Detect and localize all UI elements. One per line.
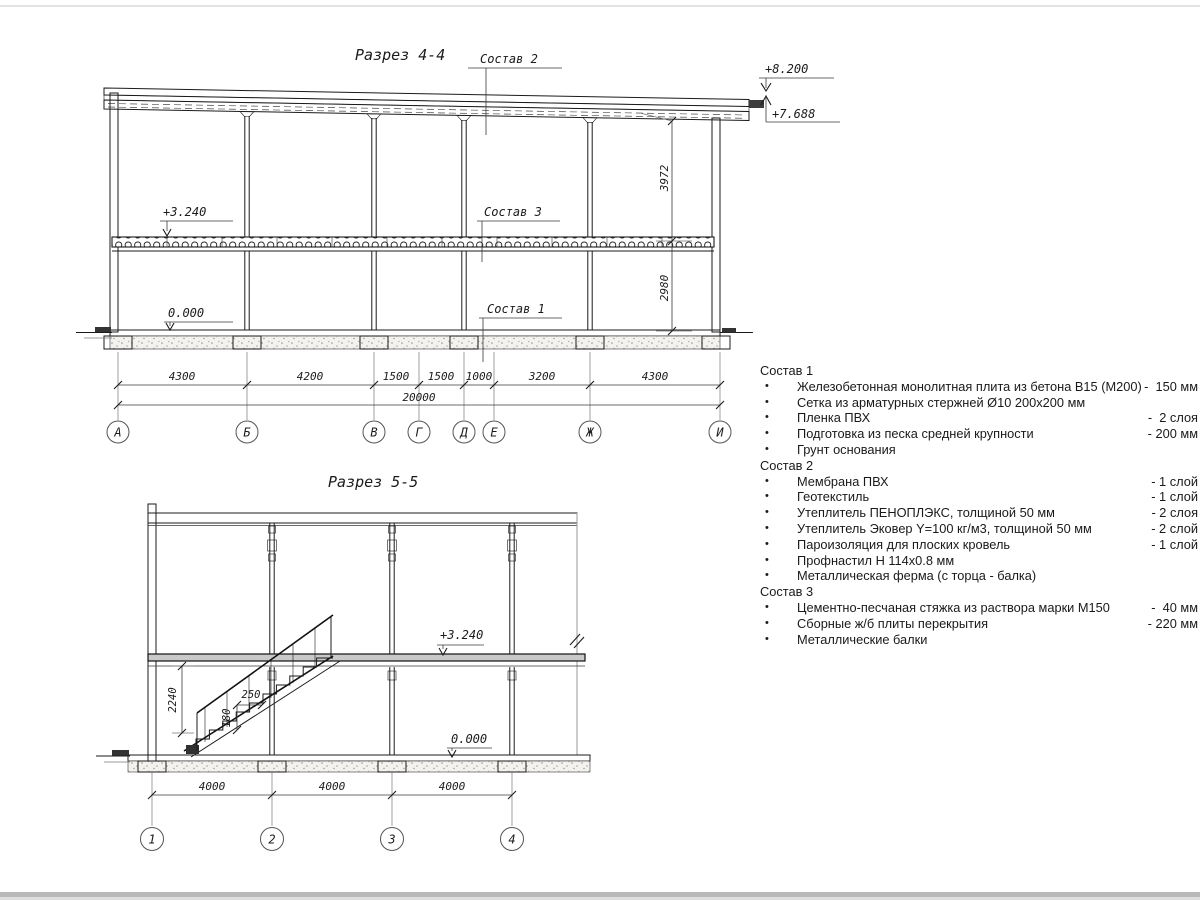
bullet-icon: • xyxy=(760,553,797,569)
bullet-icon: • xyxy=(760,537,797,553)
dim-4300-b: 4300 xyxy=(642,370,669,383)
wall-right-4-4 xyxy=(712,118,720,332)
bullet-icon: • xyxy=(760,442,797,458)
dim-4000-b: 4000 xyxy=(319,780,346,793)
sostav2-label: Состав 2 xyxy=(480,52,538,66)
bullet-icon: • xyxy=(760,395,797,411)
material-item: •Утеплитель Эковер Y=100 кг/м3, толщиной… xyxy=(760,521,1198,537)
section-5-5: Разрез 5-5 xyxy=(96,473,590,851)
axis-B: Б xyxy=(243,426,251,440)
cut-line-5-5 xyxy=(570,513,584,755)
axis-2: 2 xyxy=(268,833,275,847)
material-item: •Сетка из арматурных стержней Ø10 200х20… xyxy=(760,395,1198,411)
sostav1-callout: Состав 1 xyxy=(479,302,562,362)
dim-2240: 2240 xyxy=(167,687,179,712)
materials-header-3: Состав 3 xyxy=(760,584,1198,600)
sostav3-callout: Состав 3 xyxy=(477,205,560,262)
axes-5-5: 1 2 3 4 xyxy=(141,828,524,851)
dim-180: 180 xyxy=(221,709,233,728)
floor-slab-4-4 xyxy=(112,237,714,251)
material-item: •Мембрана ПВХ- 1 слой xyxy=(760,474,1198,490)
section-4-4: Разрез 4-4 xyxy=(76,46,840,443)
elev-8200-text: +8.200 xyxy=(765,62,808,76)
columns-upper-4-4 xyxy=(240,112,597,238)
roof-4-4 xyxy=(104,88,764,121)
section55-title: Разрез 5-5 xyxy=(328,473,418,491)
material-item: •Железобетонная монолитная плита из бето… xyxy=(760,379,1198,395)
bullet-icon: • xyxy=(760,474,797,490)
materials-header-1: Состав 1 xyxy=(760,363,1198,379)
elevation-8200: +8.200 xyxy=(759,62,834,91)
elevation-3240-4-4: +3.240 xyxy=(160,205,233,236)
dim-3972: 3972 xyxy=(658,164,671,192)
section44-title: Разрез 4-4 xyxy=(355,46,445,64)
elev-3240-text: +3.240 xyxy=(163,205,206,219)
material-item: •Грунт основания xyxy=(760,442,1198,458)
axes-4-4: А Б В Г Д Е Ж И xyxy=(107,421,731,443)
sostav1-label: Состав 1 xyxy=(487,302,545,316)
vertical-dims-4-4: 3972 2980 xyxy=(640,113,692,335)
elev-0-55-text: 0.000 xyxy=(451,732,487,746)
material-item: •Геотекстиль- 1 слой xyxy=(760,489,1198,505)
bullet-icon: • xyxy=(760,521,797,537)
drawing-canvas: Разрез 4-4 xyxy=(0,0,1200,900)
material-item: •Сборные ж/б плиты перекрытия- 220 мм xyxy=(760,616,1198,632)
dim-4000-c: 4000 xyxy=(439,780,466,793)
axis-4: 4 xyxy=(508,833,515,847)
dim-1000: 1000 xyxy=(466,370,493,383)
dim-4200: 4200 xyxy=(297,370,324,383)
bullet-icon: • xyxy=(760,410,797,426)
axis-A: А xyxy=(113,426,121,440)
elevation-3240-5-5: +3.240 xyxy=(437,628,484,655)
material-item: •Цементно-песчаная стяжка из раствора ма… xyxy=(760,600,1198,616)
sostav2-callout: Состав 2 xyxy=(468,52,562,135)
elevation-0-5-5: 0.000 xyxy=(447,732,492,757)
dim-4000-a: 4000 xyxy=(199,780,226,793)
material-item: •Профнастил Н 114х0.8 мм xyxy=(760,553,1198,569)
wall-left-4-4 xyxy=(110,93,118,332)
elevation-7688: +7.688 xyxy=(761,96,840,122)
materials-header-2: Состав 2 xyxy=(760,458,1198,474)
axis-1: 1 xyxy=(148,833,155,847)
axis-V: В xyxy=(370,426,377,440)
dim-1500-a: 1500 xyxy=(383,370,410,383)
material-item: •Подготовка из песка средней крупности- … xyxy=(760,426,1198,442)
roof-5-5 xyxy=(148,513,577,526)
bullet-icon: • xyxy=(760,616,797,632)
elev-3240-55-text: +3.240 xyxy=(440,628,483,642)
bullet-icon: • xyxy=(760,379,797,395)
ground-slab-4-4 xyxy=(76,327,753,349)
sostav3-label: Состав 3 xyxy=(484,205,542,219)
material-item: •Металлические балки xyxy=(760,632,1198,648)
materials-list: Состав 1 •Железобетонная монолитная плит… xyxy=(760,363,1198,647)
wall-left-5-5 xyxy=(148,504,156,765)
dim-4300-a: 4300 xyxy=(169,370,196,383)
dim-1500-b: 1500 xyxy=(428,370,455,383)
elev-0-text: 0.000 xyxy=(168,306,204,320)
axis-3: 3 xyxy=(387,833,395,847)
material-item: •Пароизоляция для плоских кровель- 1 сло… xyxy=(760,537,1198,553)
axis-ZH: Ж xyxy=(585,426,594,440)
dim-chain-4-4: 4300 4200 1500 1500 1000 3200 4300 20000 xyxy=(114,352,724,420)
axis-D: Д xyxy=(459,426,468,440)
material-item: •Пленка ПВХ- 2 слоя xyxy=(760,410,1198,426)
dim-3200: 3200 xyxy=(528,370,556,383)
bullet-icon: • xyxy=(760,632,797,648)
bullet-icon: • xyxy=(760,426,797,442)
dim-20000: 20000 xyxy=(402,391,435,404)
staircase xyxy=(184,615,340,757)
bullet-icon: • xyxy=(760,600,797,616)
bullet-icon: • xyxy=(760,505,797,521)
floor-slab-5-5 xyxy=(148,654,585,666)
material-item: •Утеплитель ПЕНОПЛЭКС, толщиной 50 мм- 2… xyxy=(760,505,1198,521)
dim-2980: 2980 xyxy=(658,274,671,301)
elev-7688-text: +7.688 xyxy=(772,107,815,121)
axis-E: Е xyxy=(490,426,498,440)
axis-I: И xyxy=(715,426,724,440)
dim-250: 250 xyxy=(242,689,261,701)
elevation-0-4-4: 0.000 xyxy=(164,306,233,330)
axis-G: Г xyxy=(415,426,423,440)
bullet-icon: • xyxy=(760,489,797,505)
material-item: •Металлическая ферма (с торца - балка) xyxy=(760,568,1198,584)
dim-chain-5-5: 4000 4000 4000 xyxy=(148,772,516,826)
ground-slab-5-5 xyxy=(96,750,590,772)
bullet-icon: • xyxy=(760,568,797,584)
